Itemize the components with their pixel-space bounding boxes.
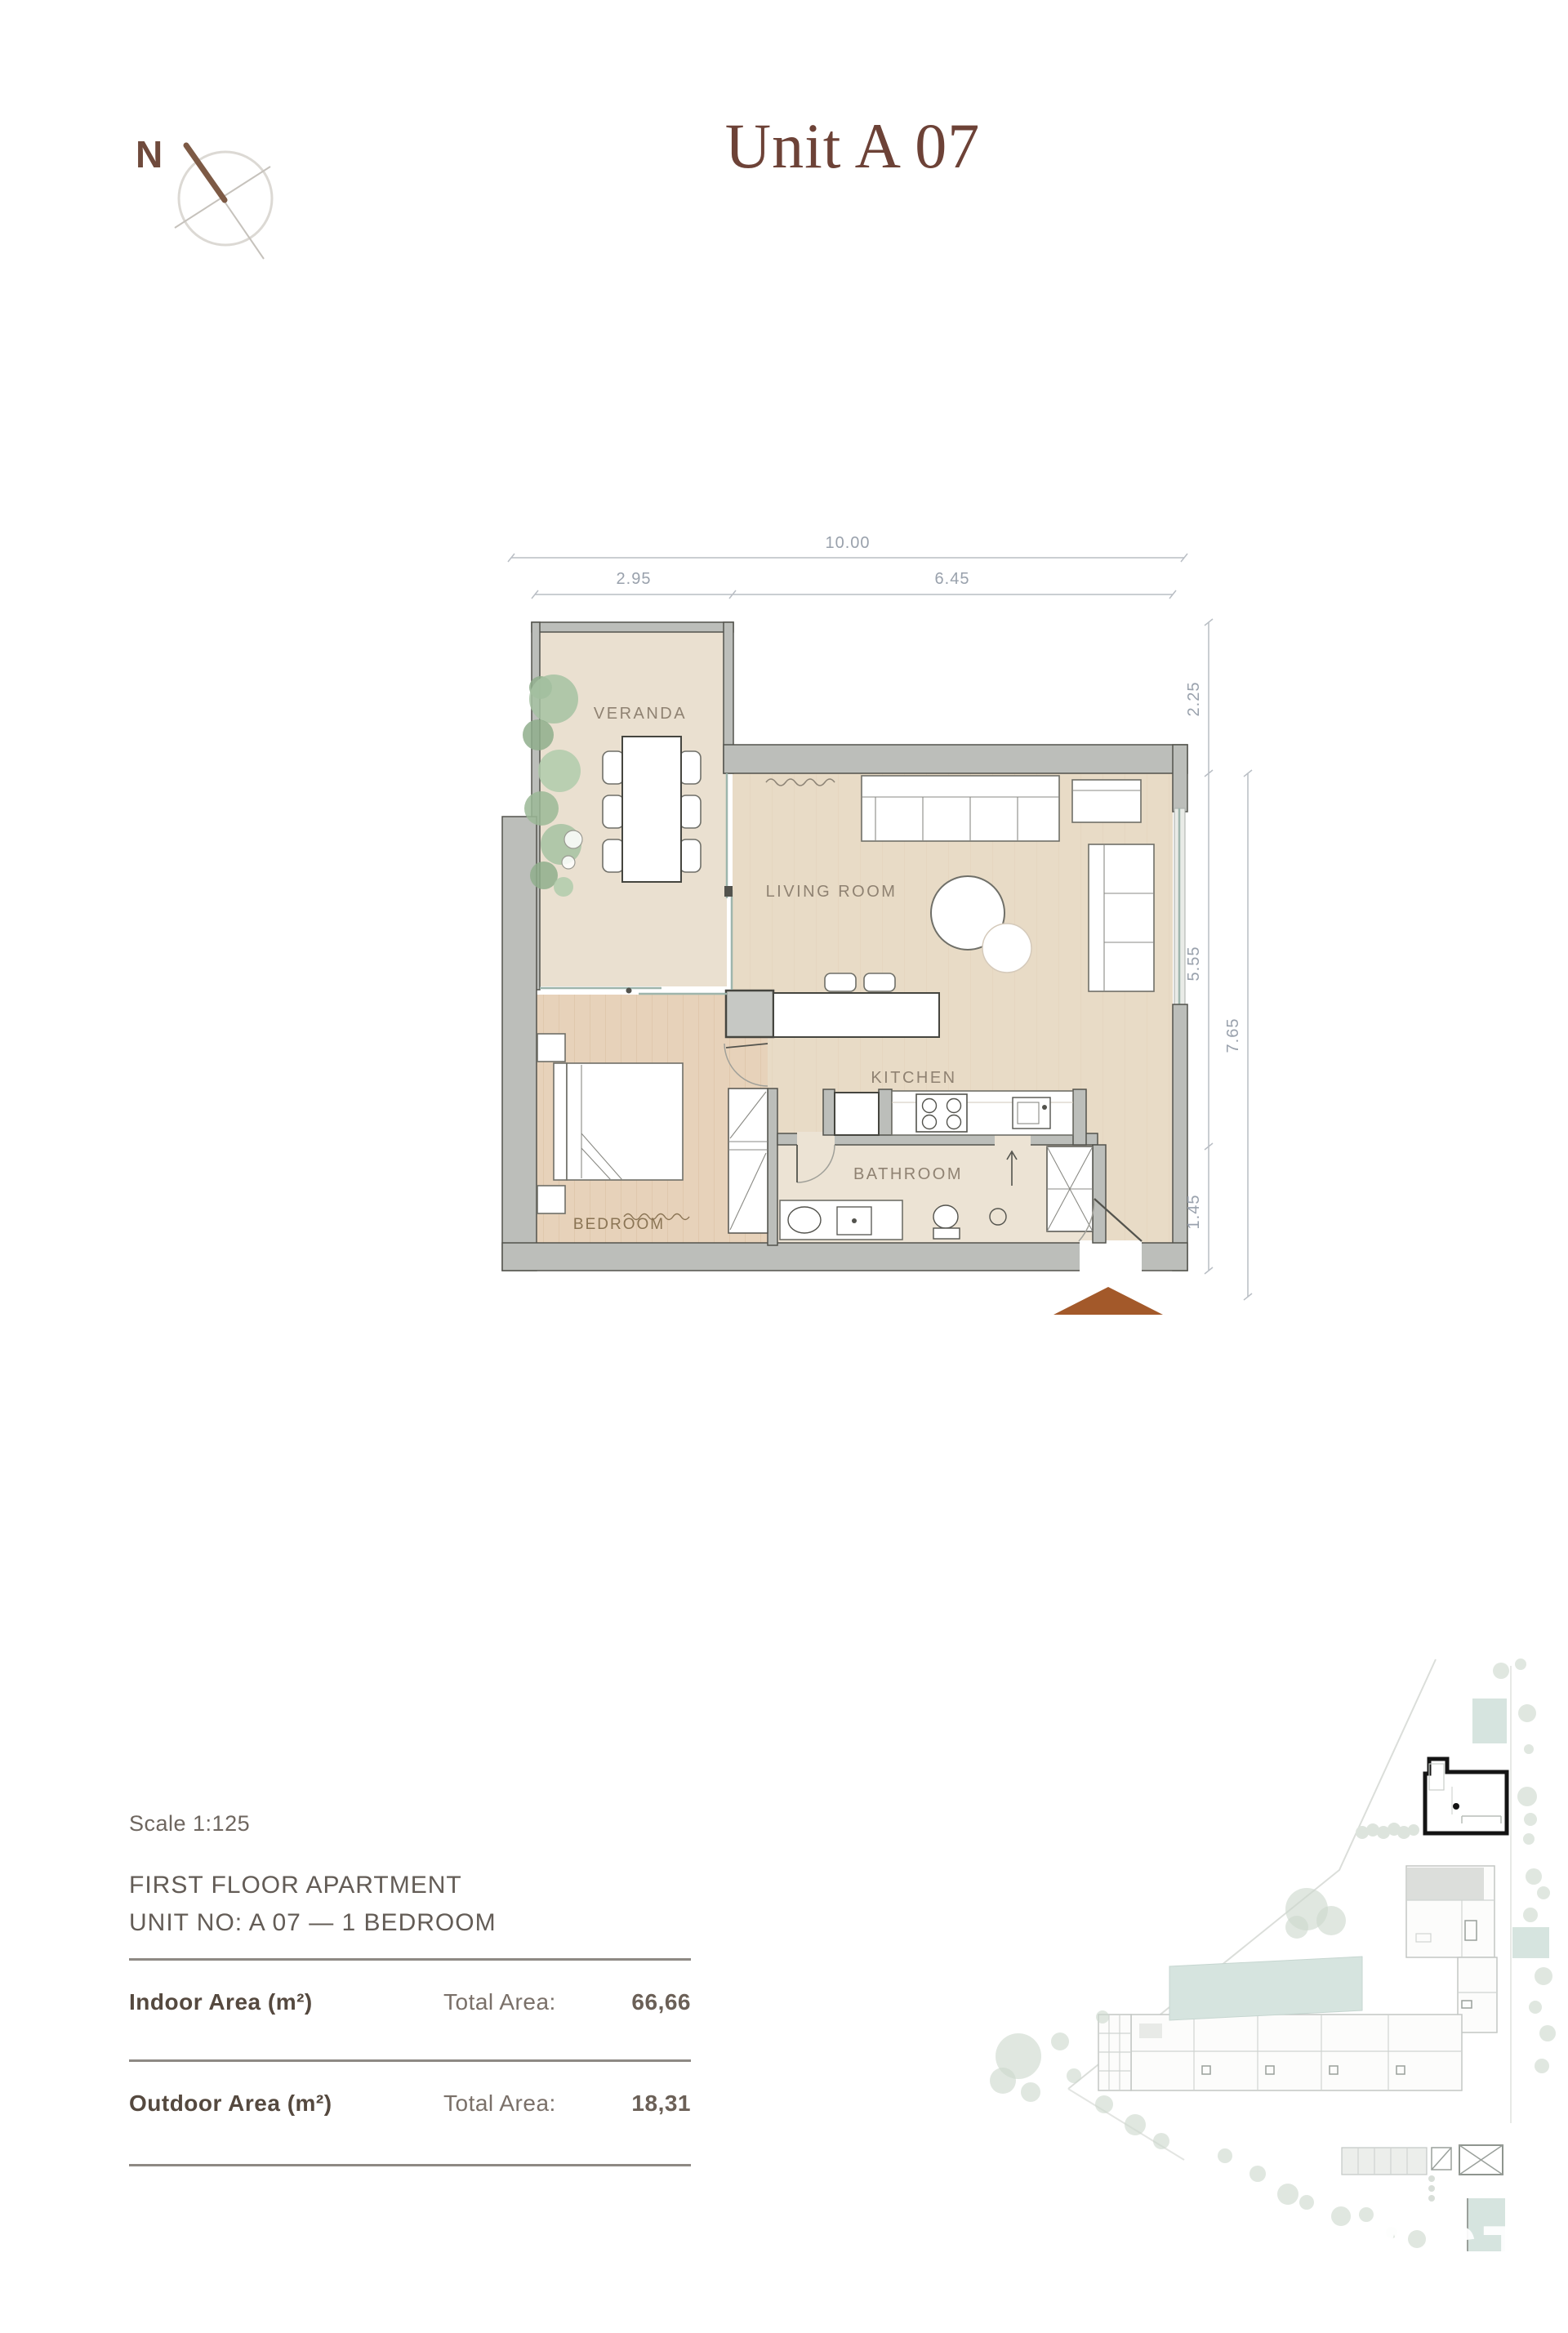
site-unit-highlight <box>1425 1759 1507 1833</box>
outdoor-total-label: Total Area: <box>443 2090 556 2117</box>
fridge <box>835 1093 879 1135</box>
site-balcony-grid <box>1098 2015 1131 2090</box>
label-living-room: LIVING ROOM <box>766 883 898 901</box>
vanity <box>780 1200 902 1240</box>
kitchen-column <box>726 991 773 1037</box>
divider-rule <box>129 2059 691 2062</box>
dining-table <box>622 737 681 882</box>
outdoor-area-label: Outdoor Area (m²) <box>129 2090 332 2117</box>
kitchen-island <box>773 993 939 1037</box>
right-wall-lower <box>1173 1004 1187 1271</box>
dim-total-width: 10.00 <box>825 534 870 552</box>
floor-heading: FIRST FLOOR APARTMENT <box>129 1872 701 1899</box>
side-sofa <box>1089 844 1154 991</box>
site-unit-row <box>1098 2015 1462 2090</box>
page-title: Unit A 07 <box>444 109 1261 183</box>
kitchen-wall-b <box>879 1089 892 1135</box>
glass-door-handle <box>724 886 733 897</box>
scale-note: Scale 1:125 <box>129 1811 250 1837</box>
floor-plan: VERANDA LIVING ROOM KITCHEN BATHROOM BED… <box>457 523 1323 1372</box>
kitchen-wall-c <box>1073 1089 1086 1145</box>
bar-stool <box>825 973 856 991</box>
bathroom-right-wall <box>1093 1145 1106 1243</box>
dining-chair <box>603 839 624 872</box>
site-building-b <box>1458 1957 1497 2032</box>
site-pool-upper <box>1472 1699 1507 1743</box>
bedroom-partition-wall <box>768 1089 777 1245</box>
indoor-total-label: Total Area: <box>443 1989 556 2015</box>
headboard <box>554 1063 567 1180</box>
dining-chair <box>679 751 701 784</box>
compass-north-label: N <box>136 133 163 176</box>
veranda-top-wall <box>532 622 733 632</box>
divider-rule <box>129 2164 691 2166</box>
dim-living-height: 5.55 <box>1185 946 1203 982</box>
indoor-area-label: Indoor Area (m²) <box>129 1989 313 2015</box>
plant-pot <box>564 830 582 848</box>
label-veranda: VERANDA <box>594 705 687 723</box>
dim-veranda-width: 2.95 <box>617 570 652 588</box>
dining-chair <box>679 839 701 872</box>
label-bathroom: BATHROOM <box>853 1165 963 1183</box>
bed <box>567 1063 683 1180</box>
unit-heading: UNIT NO: A 07 — 1 BEDROOM <box>129 1909 701 1937</box>
plant-pot <box>562 856 575 869</box>
nightstand <box>537 1034 565 1062</box>
dim-lower-height: 1.45 <box>1185 1195 1203 1230</box>
toilet-tank <box>933 1228 960 1239</box>
nightstand <box>537 1186 565 1213</box>
watermark-brand-sub: IMMOBILIEN <box>1307 2277 1568 2316</box>
entrance-arrow-icon <box>1053 1287 1163 1315</box>
indoor-area-row: Indoor Area (m²) Total Area: 66,66 <box>129 1989 691 2017</box>
hall-closet <box>1047 1146 1093 1231</box>
coffee-table-small <box>982 924 1031 973</box>
glass-handle-dot <box>626 988 632 994</box>
dining-chair <box>603 795 624 828</box>
label-bedroom: BEDROOM <box>573 1216 665 1233</box>
kitchen-wall-a <box>823 1089 835 1135</box>
compass-rose-icon: N <box>114 98 327 302</box>
right-wall-upper <box>1173 745 1187 812</box>
veranda-dining-set <box>603 737 701 882</box>
dining-chair <box>679 795 701 828</box>
dim-total-height: 7.65 <box>1224 1018 1242 1053</box>
site-buildings <box>1098 1823 1505 2251</box>
entrance-opening <box>1080 1240 1142 1273</box>
sofa <box>862 776 1059 841</box>
site-pool-main <box>1169 1957 1362 2020</box>
dim-upper-height: 2.25 <box>1185 682 1203 717</box>
faucet-icon <box>1042 1105 1047 1110</box>
site-building-a <box>1406 1866 1494 1957</box>
dim-main-width: 6.45 <box>935 570 970 588</box>
site-hedge <box>1356 1823 1419 1839</box>
armchair <box>1072 780 1141 822</box>
left-exterior-wall <box>502 817 537 1271</box>
outdoor-area-row: Outdoor Area (m²) Total Area: 18,31 <box>129 2090 691 2118</box>
toilet-bowl <box>933 1205 958 1228</box>
label-kitchen: KITCHEN <box>871 1069 956 1087</box>
outdoor-area-value: 18,31 <box>631 2090 691 2117</box>
bedroom-wardrobe <box>728 1089 768 1233</box>
divider-rule <box>129 1958 691 1961</box>
dining-chair <box>603 751 624 784</box>
indoor-area-value: 66,66 <box>631 1989 691 2015</box>
top-wall <box>724 745 1187 773</box>
bar-stool <box>864 973 895 991</box>
site-pool-right <box>1512 1927 1549 1958</box>
